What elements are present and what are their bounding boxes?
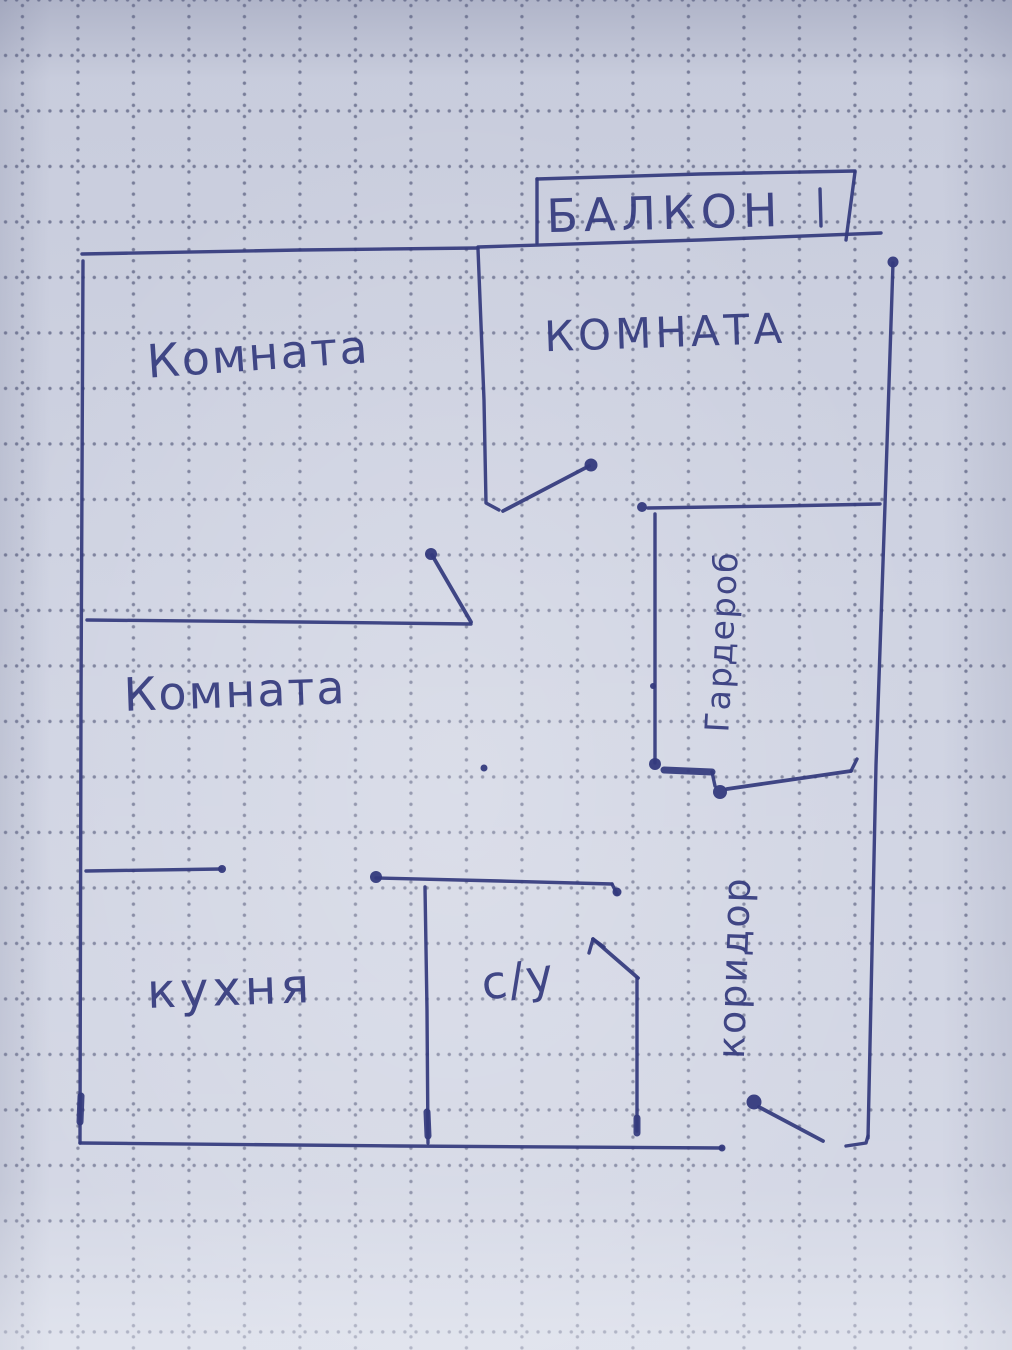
dot-kitchen-wall-end <box>218 865 226 873</box>
ink-blob-left-wall <box>80 1096 81 1122</box>
door-leaf-middle-room <box>432 555 471 622</box>
dot-wardrobe-door-hinge <box>713 785 727 799</box>
dot-entry-door-hinge <box>747 1095 762 1110</box>
kitchen-top-wall <box>86 869 221 871</box>
wardrobe-label: Гардероб <box>697 550 745 734</box>
room-middle-label: Комната <box>123 660 348 722</box>
wardrobe-top-wall <box>648 504 880 508</box>
dot-bottom-wall-end <box>719 1145 726 1152</box>
dot-right-wall-top <box>888 257 899 268</box>
door-leaf-top-right-room <box>503 466 589 511</box>
floor-plan-sketch: БАЛКОН Комната КОМНАТА Комната Гардероб … <box>0 0 1012 1350</box>
dot-wardrobe-wall <box>650 683 656 689</box>
room-top-right-label: КОМНАТА <box>543 304 786 361</box>
wall-outer-bottom <box>80 1143 722 1148</box>
kitchen-bathroom-top-wall <box>376 878 612 884</box>
wardrobe-door-leaf <box>727 771 851 789</box>
wardrobe-bottom-stub <box>664 770 712 772</box>
wardrobe-door-end-tick <box>851 759 857 771</box>
kitchen-label: кухня <box>146 958 314 1020</box>
dot-wardrobe-bottom-left <box>649 758 661 770</box>
balcony-door-tick <box>820 189 821 226</box>
dot-wardrobe-top-left <box>637 502 647 512</box>
dot-bathroom-corner <box>613 888 622 897</box>
ink-blob-divider <box>427 1112 428 1136</box>
corridor-label: коридор <box>709 875 759 1059</box>
dot-stray-mark <box>481 765 488 772</box>
balcony-right-edge <box>846 172 855 240</box>
graph-paper-background: БАЛКОН Комната КОМНАТА Комната Гардероб … <box>0 0 1012 1350</box>
balcony-top-edge <box>537 171 855 179</box>
kitchen-bathroom-divider <box>425 887 428 1143</box>
balcony-label: БАЛКОН <box>546 183 784 243</box>
bathroom-door-arrowhead <box>589 939 604 953</box>
entry-door-leaf <box>759 1107 823 1141</box>
room-top-left-label: Комната <box>145 319 371 388</box>
bathroom-label: с/у <box>478 947 559 1011</box>
dot-top-room-door-knob <box>585 459 598 472</box>
wall-outer-left <box>80 261 83 1143</box>
wall-divider-top-rooms <box>478 249 499 510</box>
wall-top-left-room <box>82 248 478 254</box>
dot-middle-room-door-knob <box>425 548 437 560</box>
wall-divider-middle-room <box>87 620 471 624</box>
wall-outer-right <box>868 263 893 1138</box>
wall-bottom-right-hook <box>846 1136 868 1146</box>
dot-kitchen-wall-hinge <box>370 871 382 883</box>
